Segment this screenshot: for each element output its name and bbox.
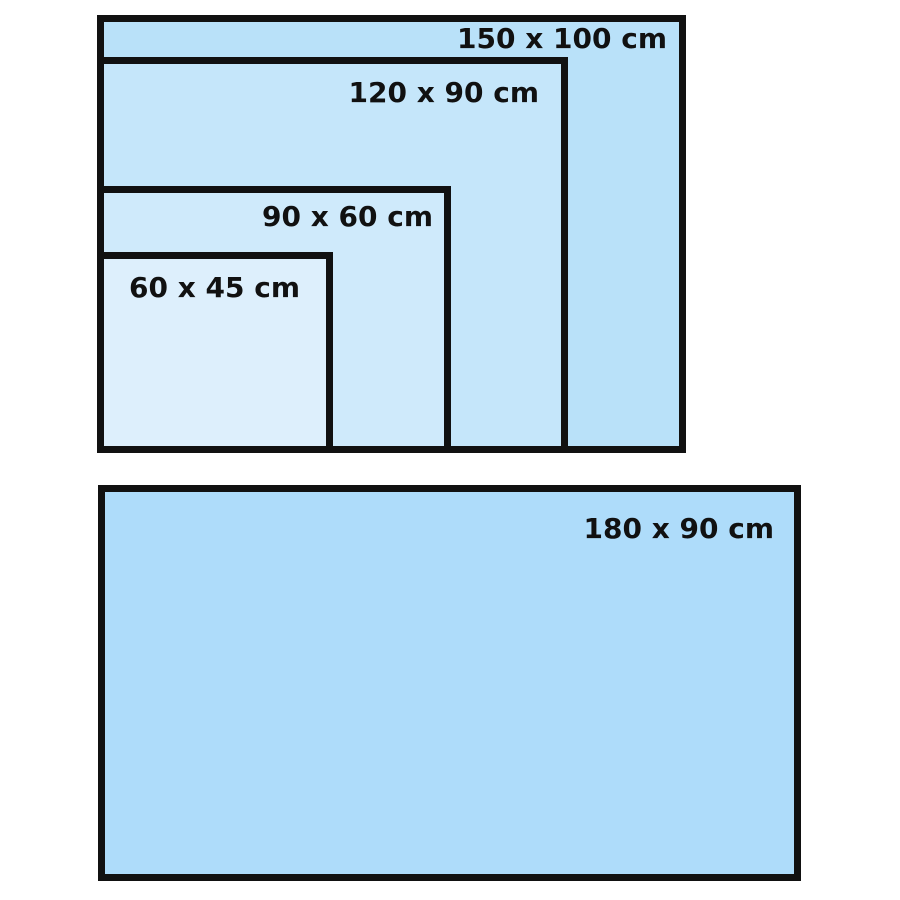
size-rect-60x45: 60 x 45 cm: [97, 252, 333, 453]
size-rect-180x90: 180 x 90 cm: [98, 485, 801, 881]
size-label-180x90: 180 x 90 cm: [584, 512, 775, 545]
size-label-150x100: 150 x 100 cm: [457, 22, 667, 55]
size-label-90x60: 90 x 60 cm: [262, 200, 433, 233]
size-label-120x90: 120 x 90 cm: [349, 76, 540, 109]
size-label-60x45: 60 x 45 cm: [129, 271, 300, 304]
size-comparison-diagram: 150 x 100 cm 120 x 90 cm 90 x 60 cm 60 x…: [0, 0, 900, 900]
